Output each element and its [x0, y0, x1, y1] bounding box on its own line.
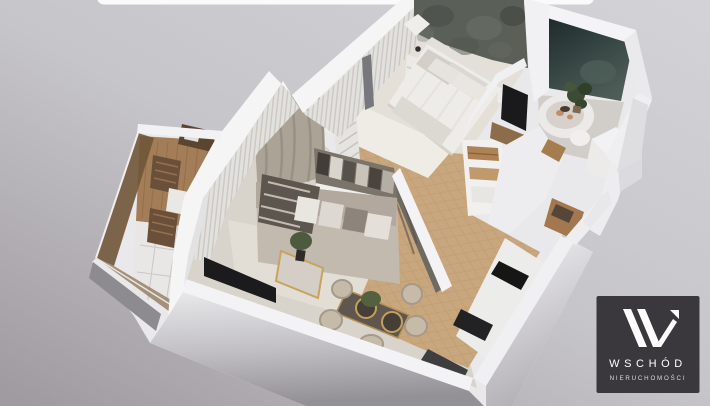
svg-text:WSCHÓD: WSCHÓD	[609, 357, 687, 370]
svg-text:NIERUCHOMOŚCI: NIERUCHOMOŚCI	[610, 374, 687, 382]
